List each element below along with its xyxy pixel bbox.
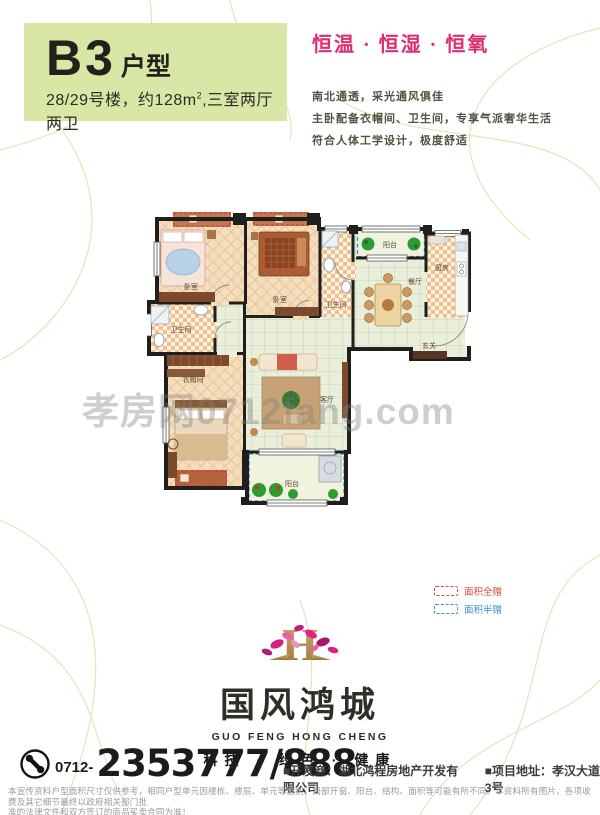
phone-area-code: 0712- xyxy=(55,759,93,776)
room-label-balcony-top: 阳台 xyxy=(383,240,397,249)
feature-line: 主卧配备衣帽间、卫生间，专享气派奢华生活 xyxy=(312,108,552,130)
feature-line: 符合人体工学设计，极度舒适 xyxy=(312,130,552,152)
disclaimer-line: 准的法律文件和双方签订的商品买卖合同为准！ xyxy=(8,807,594,815)
feature-description: 南北通透，采光通风俱佳 主卧配备衣帽间、卫生间，专享气派奢华生活 符合人体工学设… xyxy=(312,86,552,152)
phone-icon xyxy=(18,747,52,781)
room-label-bath-left: 卫生间 xyxy=(171,325,192,334)
subtitle-main: 28/29号楼，约128m xyxy=(46,92,197,109)
feature-line: 南北通透，采光通风俱佳 xyxy=(312,86,552,108)
marketing-slogan: 恒温 · 恒湿 · 恒氧 xyxy=(312,28,489,57)
room-label-dining: 餐厅 xyxy=(408,277,422,286)
brand-name-cn: 国风鸿城 xyxy=(0,677,600,728)
room-label-bedroom2: 卧室 xyxy=(273,295,287,304)
room-label-balcony-bottom: 阳台 xyxy=(285,479,299,488)
unit-type-code: B3 xyxy=(46,33,116,83)
legend-label-full-gift: 面积全赠 xyxy=(464,584,502,598)
disclaimer: 本宣传资料户型面积尺寸仅供参考，相同户型单元因楼栋、楼层、单元等差别，局部开窗、… xyxy=(8,786,594,815)
floor-plan: 卧室 卧室 卫生间 阳台 厨房 餐厅 玄关 卫生间 衣帽间 客厅 阳台 xyxy=(147,202,477,507)
unit-type-suffix: 户型 xyxy=(121,47,171,83)
room-label-bedroom1: 卧室 xyxy=(184,282,198,291)
legend-swatch-half-gift xyxy=(434,604,458,614)
disclaimer-line: 本宣传资料户型面积尺寸仅供参考，相同户型单元因楼栋、楼层、单元等差别，局部开窗、… xyxy=(8,786,594,807)
logo-monogram-icon: H xyxy=(225,614,375,674)
unit-type-subtitle: 28/29号楼，约128m2,三室两厅两卫 xyxy=(46,86,287,134)
legend-swatch-full-gift xyxy=(434,586,458,596)
foyer-cabinet xyxy=(413,351,447,359)
room-label-bath-top: 卫生间 xyxy=(326,300,347,309)
flyer-page: B3 户型 28/29号楼，约128m2,三室两厅两卫 恒温 · 恒湿 · 恒氧… xyxy=(0,0,600,815)
room-label-foyer: 玄关 xyxy=(422,341,436,350)
unit-type-badge: B3 户型 28/29号楼，约128m2,三室两厅两卫 xyxy=(24,23,287,121)
watermark: 孝房网0712fang.com xyxy=(82,381,455,435)
room-label-kitchen: 厨房 xyxy=(435,263,449,272)
